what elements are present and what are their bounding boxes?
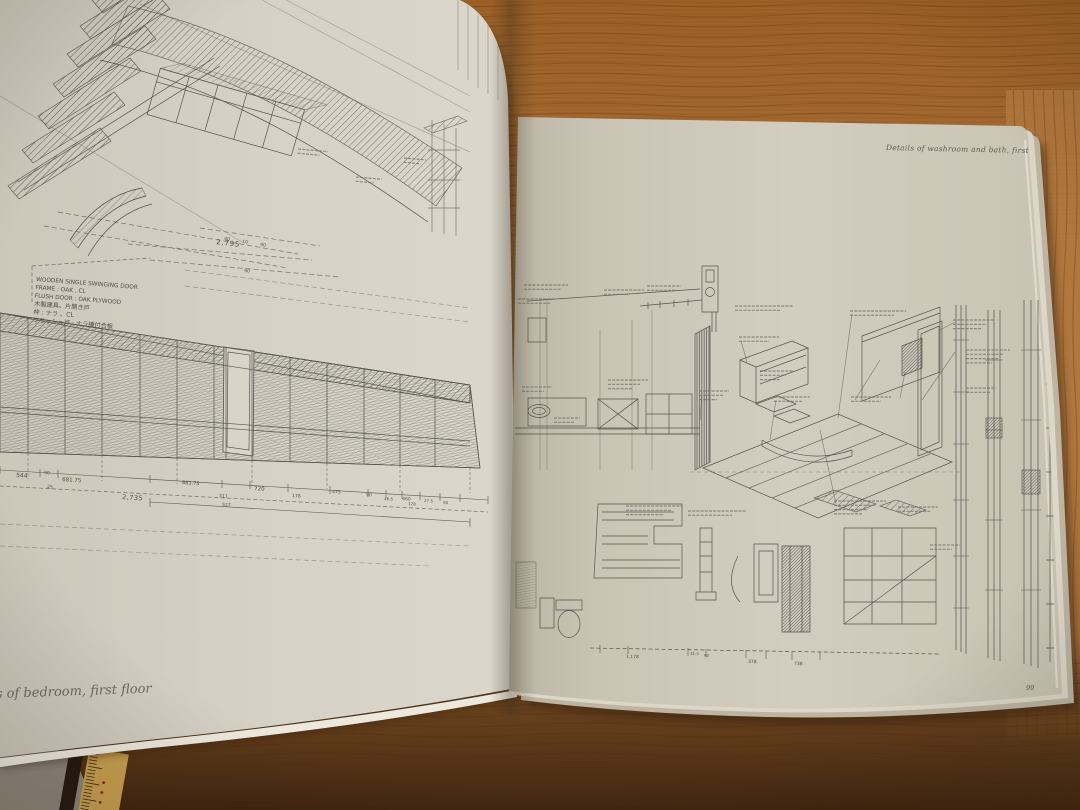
vignette <box>0 0 1080 810</box>
photo-open-architecture-book: WOODEN SINGLE SWINGING DOOR FRAME : OAK … <box>0 0 1080 810</box>
book-photo-canvas: WOODEN SINGLE SWINGING DOOR FRAME : OAK … <box>0 0 1080 810</box>
